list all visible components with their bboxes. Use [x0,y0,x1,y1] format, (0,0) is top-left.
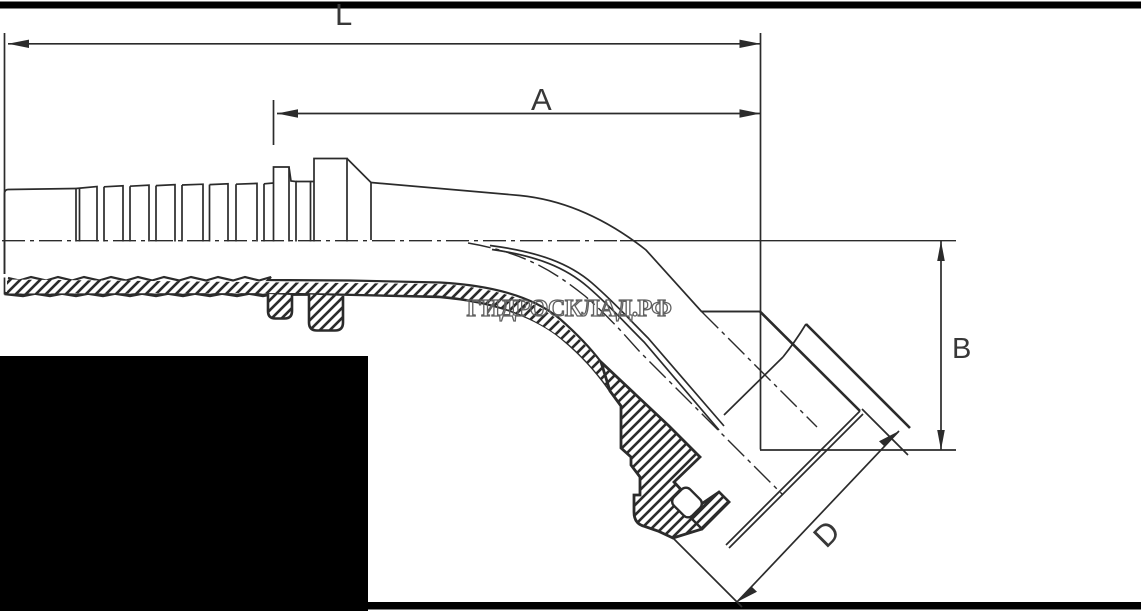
svg-text:ГИДРОСКЛАД.РФ: ГИДРОСКЛАД.РФ [467,296,672,322]
svg-text:B: B [952,333,971,365]
svg-text:A: A [531,82,552,117]
svg-text:L: L [335,0,352,32]
